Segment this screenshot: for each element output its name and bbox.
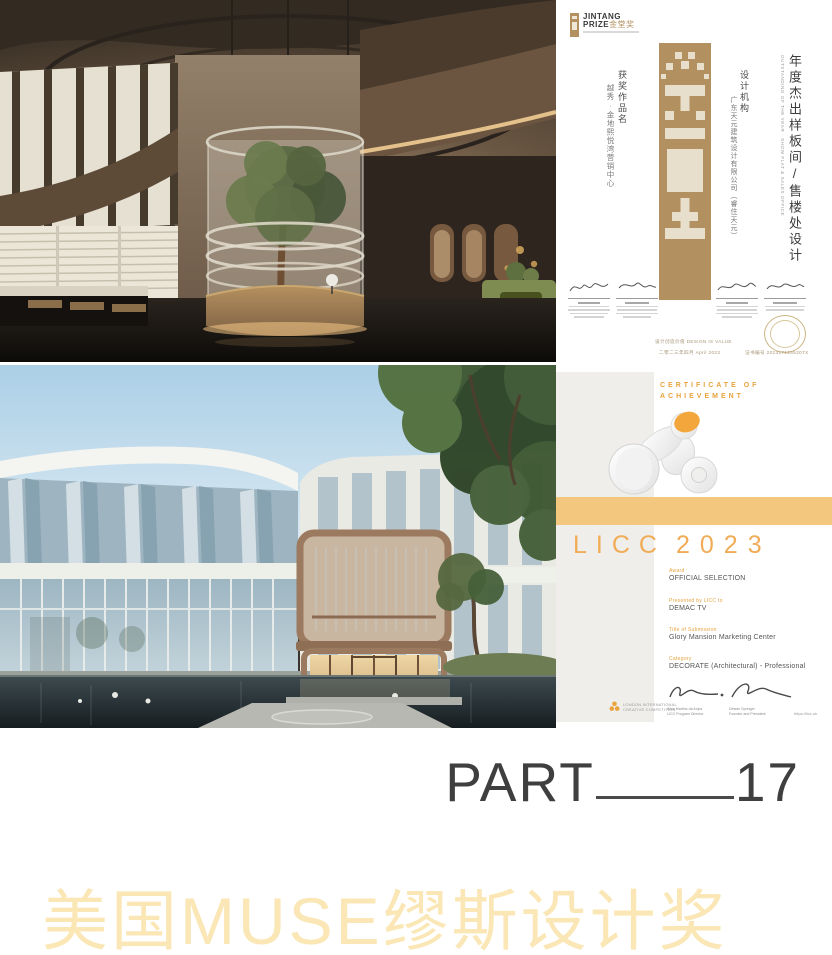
jintang-logo-line2: PRIZE [583, 20, 609, 29]
part-label: PART [445, 751, 595, 813]
licc-title-word: LICC [573, 531, 666, 560]
juror-signature-3 [714, 278, 760, 320]
awarded-work-block: 获奖作品名 越秀·金地熙悦湾营销中心 [605, 70, 629, 290]
jintang-logo: JINTANG PRIZE金堂奖 [570, 13, 639, 37]
exterior-photo [0, 365, 556, 728]
licc-signature-2 [728, 677, 794, 705]
category-value: DECORATE (Architectural) - Professional [669, 663, 805, 670]
award-portfolio-page: JINTANG PRIZE金堂奖 年度杰出样板间/售楼处设计 OUTSTANDI… [0, 0, 832, 955]
juror-signature-2 [614, 278, 660, 320]
section-title-muse-award: 美国MUSE缪斯设计奖 [42, 868, 728, 955]
part-separator-line [596, 796, 734, 799]
part-number: 17 [735, 751, 800, 813]
presented-value: DEMAC TV [669, 605, 707, 612]
award-category-title: 年度杰出样板间/售楼处设计 [785, 54, 804, 284]
licc-website: https://licc.uk [794, 711, 817, 716]
jintang-logo-icon [570, 13, 579, 37]
licc-header-line1: CERTIFICATE OF [660, 380, 759, 391]
jin-character-bar-icon [659, 43, 711, 300]
jintang-certificate: JINTANG PRIZE金堂奖 年度杰出样板间/售楼处设计 OUTSTANDI… [556, 0, 832, 362]
jintang-serial-number: 证书编号 2023171255207X [745, 350, 809, 356]
design-agency-block: 设计机构 广东天元建筑设计有限公司（睿住天元） [728, 70, 751, 310]
licc-logo: LONDON INTERNATIONAL CREATIVE COMPETITIO… [609, 701, 677, 712]
certificate-stamp-icon [764, 315, 806, 353]
licc-sig1-title: LICC Program Director [667, 712, 719, 717]
juror-signature-1 [566, 278, 612, 320]
jintang-logo-tagline [583, 31, 639, 33]
submission-label: Title of Submission [669, 627, 717, 633]
design-agency-label: 设计机构 [739, 70, 749, 114]
licc-trefoil-icon [609, 701, 620, 712]
award-category-title-en: OUTSTANDING OF THE YEAR · SHOW FLAT & SA… [780, 55, 785, 245]
category-label: Category [669, 656, 692, 662]
award-label: Award [669, 568, 685, 574]
interior-photo [0, 0, 556, 362]
licc-certificate: CERTIFICATE OF ACHIEVEMENT LICC 2023 Awa… [556, 365, 832, 735]
submission-value: Glory Mansion Marketing Center [669, 634, 776, 641]
interior-photo-illustration [0, 0, 556, 362]
awarded-work-name: 越秀·金地熙悦湾营销中心 [605, 70, 616, 290]
jintang-date: 二零二三年四月 April 2023 [659, 350, 720, 356]
jintang-slogan: 设计创造价值 DESIGN IS VALUE [655, 339, 732, 345]
exterior-photo-illustration [0, 365, 556, 728]
trophy-sculpture-icon [604, 409, 744, 509]
licc-logo-line2: CREATIVE COMPETITION [623, 707, 677, 712]
presented-label: Presented by LICC to [669, 598, 723, 604]
licc-header-line2: ACHIEVEMENT [660, 391, 759, 402]
award-value: OFFICIAL SELECTION [669, 575, 745, 582]
licc-title-year: 2023 [676, 531, 772, 560]
part-heading: PART17 [0, 750, 800, 814]
licc-sig2-title: Founder and President [729, 712, 781, 717]
juror-signature-4 [762, 278, 808, 313]
jintang-logo-cn: 金堂奖 [609, 20, 635, 29]
licc-logo-line1: LONDON INTERNATIONAL [623, 702, 677, 707]
awarded-work-label: 获奖作品名 [616, 70, 629, 290]
